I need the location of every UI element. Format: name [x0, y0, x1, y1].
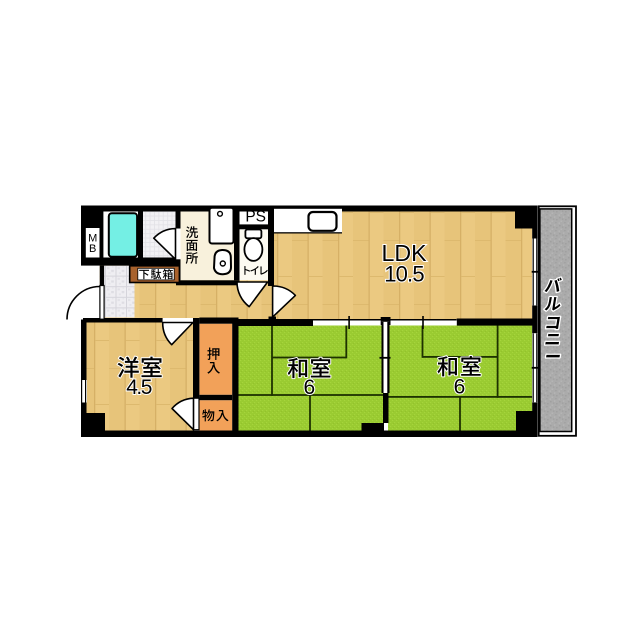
svg-text:10.5: 10.5: [384, 262, 424, 287]
svg-text:PS: PS: [245, 209, 266, 226]
svg-text:B: B: [89, 243, 96, 255]
svg-text:6: 6: [454, 376, 466, 399]
svg-text:4.5: 4.5: [126, 376, 152, 399]
svg-text:6: 6: [304, 376, 316, 399]
